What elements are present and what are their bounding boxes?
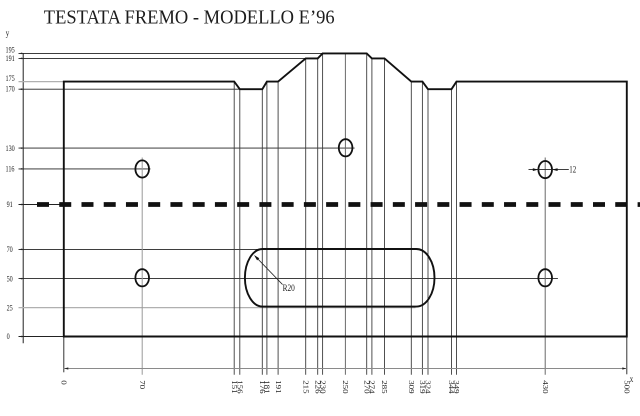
svg-text:285: 285 [380,380,388,393]
svg-text:349: 349 [452,380,460,393]
svg-text:500: 500 [623,380,631,393]
svg-text:25: 25 [7,304,14,313]
svg-text:70: 70 [138,380,146,389]
svg-text:0: 0 [7,332,10,341]
svg-text:195: 195 [6,46,16,55]
svg-text:0: 0 [60,380,68,384]
svg-text:324: 324 [424,380,432,393]
svg-text:TESTATA FREMO - MODELLO E’96: TESTATA FREMO - MODELLO E’96 [44,7,335,28]
svg-text:175: 175 [6,74,16,83]
svg-text:50: 50 [7,275,14,284]
svg-text:156: 156 [236,380,244,393]
svg-text:430: 430 [541,380,549,393]
svg-text:215: 215 [302,380,310,393]
svg-text:274: 274 [368,380,376,393]
svg-text:12: 12 [569,165,576,175]
svg-text:191: 191 [274,380,282,393]
svg-text:181: 181 [263,380,271,393]
svg-text:70: 70 [7,245,14,254]
svg-text:y: y [6,28,9,38]
svg-text:250: 250 [341,380,349,393]
svg-text:116: 116 [6,165,15,174]
svg-text:309: 309 [407,380,415,393]
svg-text:91: 91 [7,200,14,209]
svg-text:230: 230 [319,380,327,393]
svg-text:191: 191 [6,54,16,63]
svg-text:170: 170 [6,85,16,94]
svg-text:R20: R20 [283,282,295,293]
svg-text:130: 130 [6,144,16,153]
